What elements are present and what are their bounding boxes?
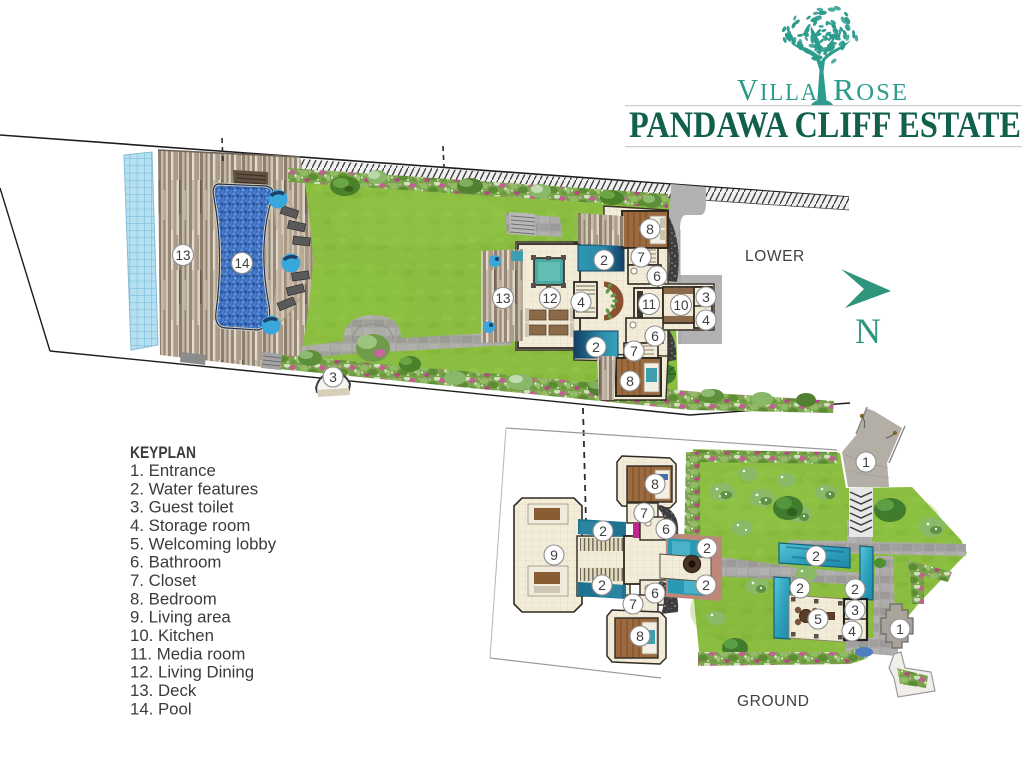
svg-text:8. Bedroom: 8. Bedroom [130,589,217,608]
svg-text:13: 13 [495,291,510,306]
svg-text:6: 6 [662,521,670,537]
svg-text:4: 4 [702,312,710,328]
svg-text:10: 10 [673,298,688,313]
svg-text:9. Living area: 9. Living area [130,608,231,627]
svg-text:5. Welcoming lobby: 5. Welcoming lobby [130,534,277,553]
svg-text:KEYPLAN: KEYPLAN [130,443,196,462]
svg-text:10. Kitchen: 10. Kitchen [130,626,214,645]
svg-text:1: 1 [862,454,870,470]
svg-text:3: 3 [851,602,859,618]
svg-text:2: 2 [599,523,607,539]
svg-text:N: N [855,311,881,351]
svg-text:8: 8 [646,221,654,237]
svg-text:9: 9 [550,547,558,563]
svg-text:2: 2 [702,577,710,593]
svg-text:8: 8 [636,628,644,644]
svg-text:1: 1 [896,621,904,637]
svg-text:2: 2 [812,548,820,564]
svg-text:2: 2 [851,581,859,597]
svg-text:PANDAWA CLIFF ESTATE: PANDAWA CLIFF ESTATE [629,105,1021,146]
svg-text:6: 6 [651,328,659,344]
svg-text:4. Storage room: 4. Storage room [130,516,250,535]
svg-text:12: 12 [542,291,557,306]
svg-text:7: 7 [637,249,645,265]
svg-text:7: 7 [630,343,638,359]
svg-text:1. Entrance: 1. Entrance [130,461,216,480]
svg-text:11: 11 [642,297,656,312]
svg-text:3. Guest toilet: 3. Guest toilet [130,498,234,517]
svg-text:2: 2 [598,577,606,593]
svg-text:8: 8 [626,373,634,389]
svg-text:2. Water features: 2. Water features [130,479,258,498]
svg-text:2: 2 [592,339,600,355]
svg-text:LOWER: LOWER [745,248,805,265]
svg-text:2: 2 [796,580,804,596]
svg-text:6: 6 [651,585,659,601]
svg-text:14. Pool: 14. Pool [130,699,192,718]
svg-text:13: 13 [175,248,190,263]
svg-text:2: 2 [600,252,608,268]
svg-text:11. Media room: 11. Media room [130,644,245,663]
svg-text:GROUND: GROUND [737,693,810,710]
svg-text:7. Closet: 7. Closet [130,571,197,590]
svg-text:7: 7 [629,596,637,612]
svg-text:8: 8 [651,476,659,492]
svg-text:13. Deck: 13. Deck [130,681,197,700]
svg-text:7: 7 [640,505,648,521]
svg-text:3: 3 [329,369,337,385]
svg-text:2: 2 [703,540,711,556]
svg-text:3: 3 [702,289,710,305]
svg-text:5: 5 [814,611,822,627]
svg-text:6. Bathroom: 6. Bathroom [130,553,221,572]
svg-text:6: 6 [653,268,661,284]
svg-text:12. Living Dining: 12. Living Dining [130,663,254,682]
svg-text:4: 4 [848,623,856,639]
svg-text:4: 4 [577,294,585,310]
svg-text:14: 14 [234,256,250,271]
